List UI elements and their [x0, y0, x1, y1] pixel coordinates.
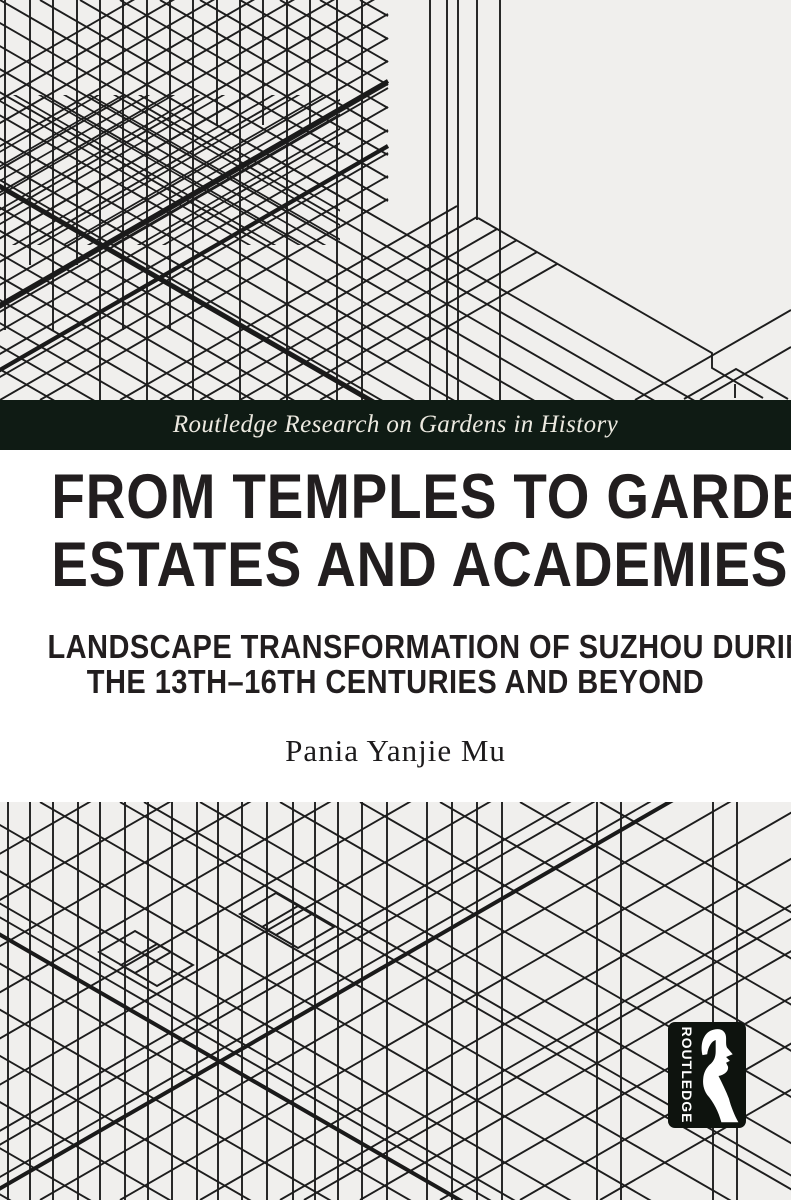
book-subtitle: LANDSCAPE TRANSFORMATION OF SUZHOU DURIN… — [47, 629, 743, 699]
title-line-2: ESTATES AND ACADEMIES — [51, 531, 739, 599]
routledge-logo: ROUTLEDGE — [668, 1022, 746, 1128]
author-name: Pania Yanjie Mu — [0, 733, 791, 769]
title-line-1: FROM TEMPLES TO GARDEN — [51, 463, 739, 531]
subtitle-line-2: THE 13TH–16TH CENTURIES AND BEYOND — [47, 664, 743, 699]
series-band: Routledge Research on Gardens in History — [0, 400, 791, 450]
book-cover: Routledge Research on Gardens in History… — [0, 0, 791, 1200]
geometric-pattern-bottom — [0, 802, 791, 1200]
subtitle-line-1: LANDSCAPE TRANSFORMATION OF SUZHOU DURIN… — [47, 629, 743, 664]
book-title: FROM TEMPLES TO GARDEN ESTATES AND ACADE… — [51, 463, 739, 599]
routledge-head-icon — [693, 1025, 745, 1125]
geometric-pattern-top — [0, 0, 791, 400]
series-title: Routledge Research on Gardens in History — [173, 411, 618, 439]
